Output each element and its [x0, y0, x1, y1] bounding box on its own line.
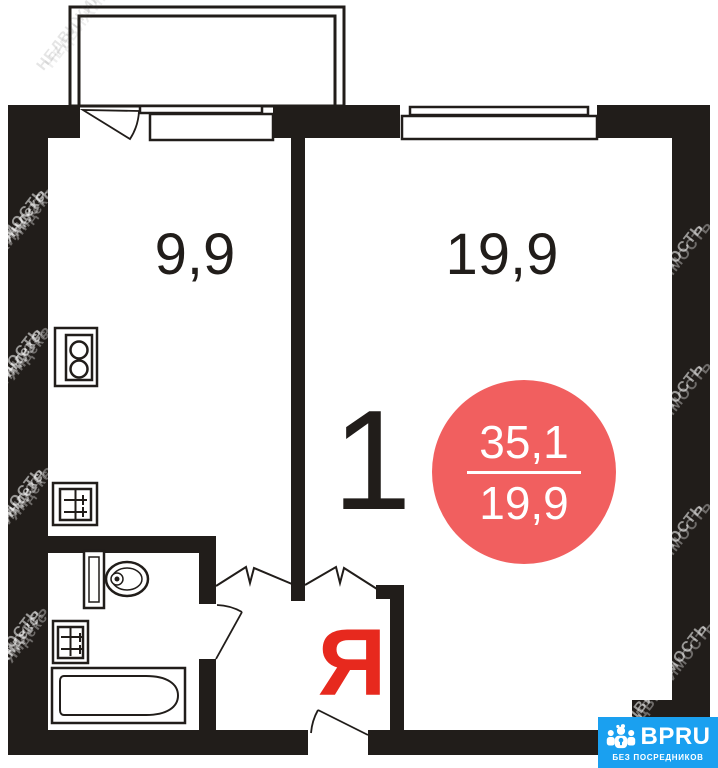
fraction-divider: [467, 471, 581, 474]
area-summary-badge: 35,1 19,9: [432, 380, 616, 564]
people-lock-icon: [605, 724, 637, 751]
bpru-name: BPRU: [640, 725, 710, 749]
bathroom-door: [216, 605, 242, 659]
wall-bathroom-right-lower: [199, 659, 216, 730]
living-area-value: 19,9: [479, 480, 569, 526]
kitchen-area-label: 9,9: [145, 226, 245, 284]
kitchen-sink-icon: [53, 483, 97, 525]
bpru-tagline: БЕЗ ПОСРЕДНИКОВ: [612, 753, 703, 762]
room-doorway-break: [305, 567, 377, 589]
wall-hall-stub: [376, 585, 404, 599]
bathroom-sink-icon: [53, 621, 88, 663]
floorplan-canvas: Яндекс НЕДВИЖИМОСТЬ Яндекс НЕДВИЖИМОСТЬ …: [0, 0, 718, 768]
room-count-label: 1: [328, 390, 416, 532]
room-area-label: 19,9: [438, 226, 566, 284]
living-window: [402, 107, 597, 139]
toilet-icon: [84, 551, 148, 608]
balcony: [70, 7, 344, 106]
wall-bathroom-top: [48, 536, 216, 553]
bpru-badge: BPRU БЕЗ ПОСРЕДНИКОВ: [598, 717, 718, 768]
total-area-value: 35,1: [479, 419, 569, 465]
bpru-badge-row: BPRU: [605, 724, 710, 751]
yandex-letter: Я: [308, 616, 396, 711]
kitchen-doorway-break: [216, 567, 292, 586]
wall-right: [672, 105, 710, 755]
kitchen-window: [140, 106, 273, 140]
wall-center-divider: [291, 138, 305, 601]
wall-left: [8, 105, 48, 755]
bathtub-icon: [52, 668, 185, 723]
entrance-opening: [308, 729, 368, 756]
wall-bathroom-right-upper: [199, 553, 216, 604]
stove-icon: [55, 328, 97, 386]
